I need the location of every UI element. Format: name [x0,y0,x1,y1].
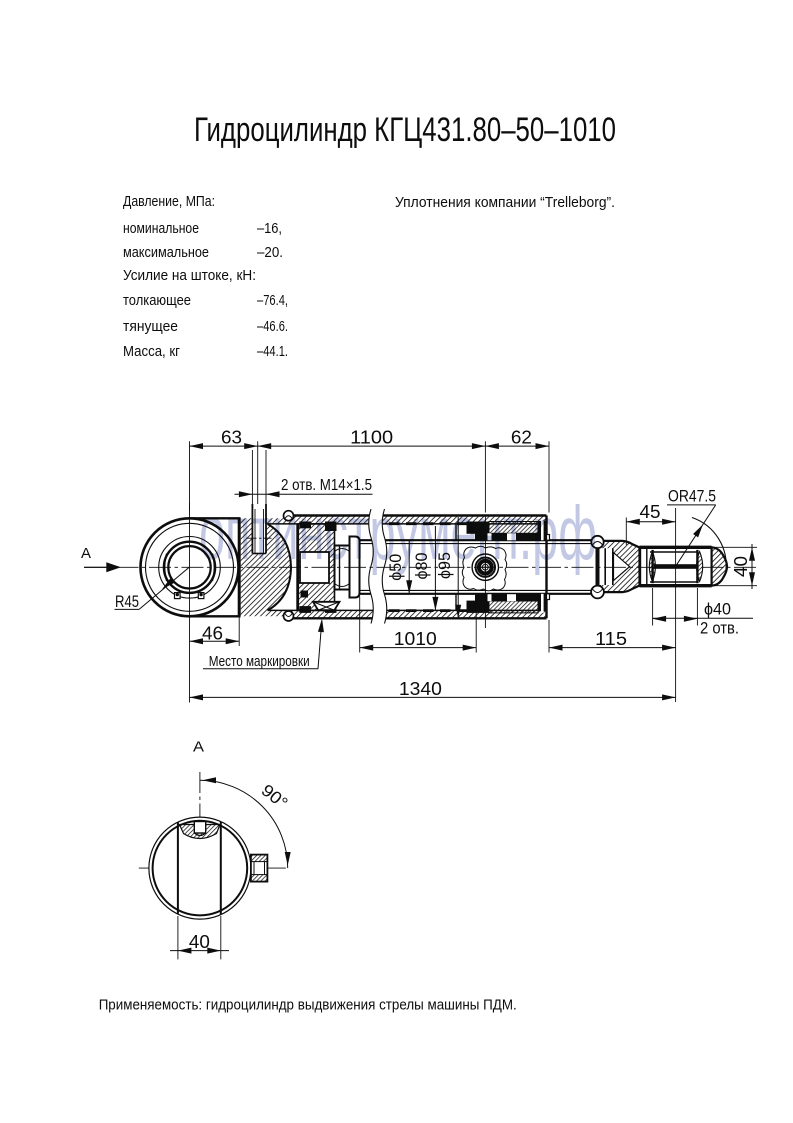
svg-text:Масса, кг: Масса, кг [123,344,180,360]
svg-text:–46.6.: –46.6. [257,319,288,335]
svg-text:R45: R45 [115,593,139,611]
svg-text:ϕ40: ϕ40 [704,601,731,619]
svg-text:–20.: –20. [257,245,283,261]
svg-text:максимальное: максимальное [123,245,209,261]
svg-text:1100: 1100 [350,427,393,447]
svg-text:–76.4,: –76.4, [257,293,288,309]
svg-text:2 отв.: 2 отв. [700,620,739,638]
svg-text:Уплотнения компании “Trellebor: Уплотнения компании “Trelleborg”. [395,195,615,211]
svg-text:40: 40 [189,932,210,952]
svg-text:А: А [193,739,204,756]
svg-text:Место маркировки: Место маркировки [209,654,310,670]
svg-text:40: 40 [731,556,751,577]
svg-text:1010: 1010 [394,629,437,649]
svg-text:1340: 1340 [399,679,442,699]
svg-text:Давление, МПа:: Давление, МПа: [123,194,215,210]
svg-text:толкающее: толкающее [123,293,191,309]
svg-text:Усилие на штоке, кН:: Усилие на штоке, кН: [123,268,256,284]
svg-text:номинальное: номинальное [123,221,199,237]
svg-text:Гидроцилиндр КГЦ431.80–50–1010: Гидроцилиндр КГЦ431.80–50–1010 [194,111,616,149]
svg-text:А: А [81,545,91,562]
svg-text:45: 45 [640,502,661,522]
svg-text:тянущее: тянущее [123,319,178,335]
svg-text:63: 63 [221,427,242,447]
svg-text:62: 62 [511,427,532,447]
svg-text:OR47.5: OR47.5 [668,488,716,506]
svg-text:Применяемость: гидроцилиндр вы: Применяемость: гидроцилиндр выдвижения с… [99,997,517,1014]
svg-text:–44.1.: –44.1. [257,344,288,360]
svg-text:115: 115 [595,629,627,649]
svg-text:46: 46 [202,623,223,643]
svg-text:оптинструмент.рф: оптинструмент.рф [199,491,597,576]
svg-text:–16,: –16, [257,221,282,237]
